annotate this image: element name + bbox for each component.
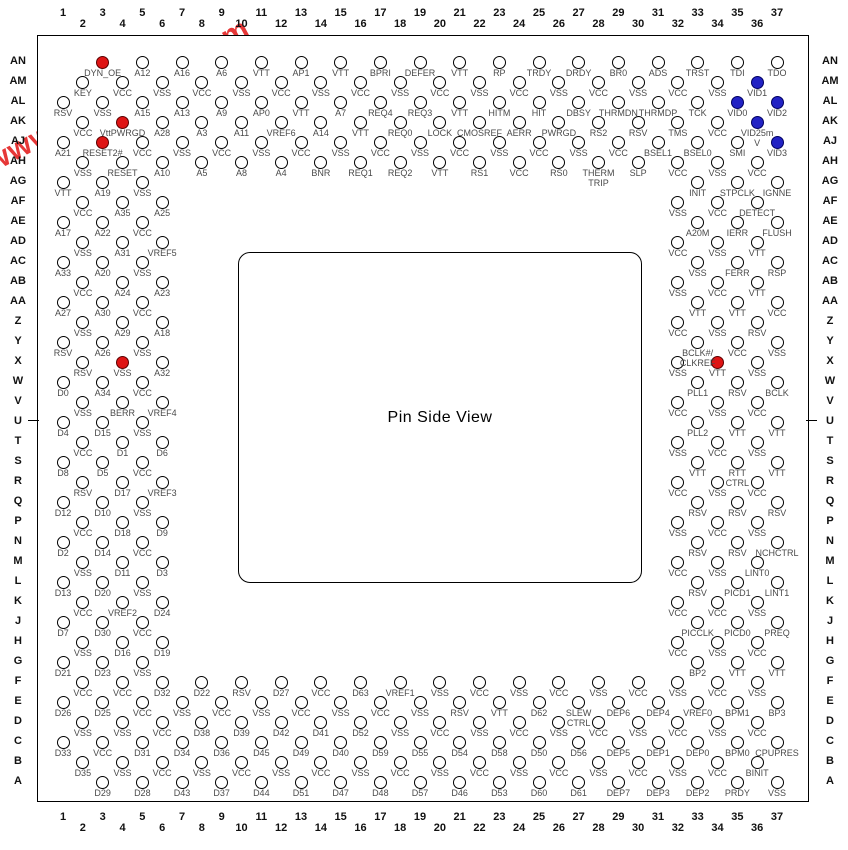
pin [96,496,109,509]
row-label-right: AG [816,175,844,187]
pin [652,56,665,69]
row-label-left: F [4,675,32,687]
row-label-left: T [4,435,32,447]
pin [156,396,169,409]
pin [156,196,169,209]
pin [76,516,89,529]
pin [671,716,684,729]
pin [771,616,784,629]
pin [57,616,70,629]
pin [116,676,129,689]
pin [493,776,506,789]
pin [751,636,764,649]
row-label-right: Q [816,495,844,507]
pin [354,756,367,769]
pin [572,736,585,749]
pin [394,76,407,89]
pin [76,436,89,449]
pin [751,356,764,369]
pin [96,536,109,549]
pin [473,676,486,689]
pin [711,196,724,209]
pin [612,696,625,709]
pin [671,516,684,529]
pin [632,756,645,769]
pin [493,696,506,709]
pin [156,476,169,489]
pin [453,136,466,149]
pin [136,456,149,469]
pin [533,96,546,109]
pin [711,436,724,449]
pin [691,96,704,109]
pin [632,116,645,129]
pin [513,756,526,769]
pin [691,296,704,309]
col-number-bottom: 27 [568,811,590,823]
pin [533,136,546,149]
pin [275,156,288,169]
row-label-left: P [4,515,32,527]
pin [612,736,625,749]
col-number-top: 4 [112,18,134,30]
pin [592,676,605,689]
pin [195,116,208,129]
pin [334,96,347,109]
pin [76,356,89,369]
col-number-bottom: 18 [389,822,411,834]
pin [156,236,169,249]
pin [96,136,109,149]
pin [433,716,446,729]
pin [552,156,565,169]
pin [195,756,208,769]
row-label-right: AB [816,275,844,287]
pin [394,156,407,169]
pin [176,776,189,789]
pin [76,76,89,89]
col-number-top: 2 [72,18,94,30]
row-label-right: Z [816,315,844,327]
pin [731,576,744,589]
center-box: Pin Side View [238,252,642,583]
pin [57,496,70,509]
pin [57,736,70,749]
row-label-right: AL [816,95,844,107]
pin [671,196,684,209]
row-label-left: AD [4,235,32,247]
pin [96,256,109,269]
pin [493,56,506,69]
pin [136,496,149,509]
row-label-right: N [816,535,844,547]
col-number-bottom: 11 [250,811,272,823]
pin [414,136,427,149]
col-number-top: 29 [607,7,629,19]
row-label-left: AA [4,295,32,307]
pin [473,756,486,769]
pin [771,656,784,669]
pin [275,716,288,729]
pin [671,596,684,609]
col-number-bottom: 31 [647,811,669,823]
pin [136,416,149,429]
pin [711,156,724,169]
col-number-bottom: 13 [290,811,312,823]
pin [731,136,744,149]
pin [156,676,169,689]
row-label-right: U [816,415,844,427]
col-number-top: 9 [211,7,233,19]
pin [751,476,764,489]
pin [76,716,89,729]
pin [195,676,208,689]
pin [771,96,784,109]
col-number-top: 30 [627,18,649,30]
pin [394,676,407,689]
pin [76,276,89,289]
col-number-bottom: 16 [350,822,372,834]
pin [96,176,109,189]
pin [711,316,724,329]
pin [731,696,744,709]
pin [691,656,704,669]
row-label-left: K [4,595,32,607]
col-number-top: 16 [350,18,372,30]
row-label-left: M [4,555,32,567]
col-number-bottom: 6 [151,822,173,834]
pin [414,56,427,69]
pin [533,736,546,749]
pin [691,536,704,549]
pin [572,136,585,149]
pin [295,56,308,69]
pin [691,616,704,629]
pin [255,776,268,789]
pin [295,696,308,709]
pin [374,736,387,749]
pin [295,776,308,789]
col-number-top: 32 [667,18,689,30]
col-number-top: 3 [92,7,114,19]
pin [314,756,327,769]
pin [116,636,129,649]
pin [711,236,724,249]
pin [57,376,70,389]
pin [354,76,367,89]
pin [592,756,605,769]
pin [96,776,109,789]
pin [433,76,446,89]
pin [76,636,89,649]
col-number-top: 21 [449,7,471,19]
row-label-right: AH [816,155,844,167]
pin [632,676,645,689]
col-number-top: 25 [528,7,550,19]
pin [116,516,129,529]
pin [156,316,169,329]
row-label-right: J [816,615,844,627]
col-number-bottom: 3 [92,811,114,823]
row-label-left: AC [4,255,32,267]
col-number-bottom: 36 [746,822,768,834]
pin [612,96,625,109]
row-label-left: AF [4,195,32,207]
col-number-bottom: 19 [409,811,431,823]
pin [632,76,645,89]
pin [453,736,466,749]
pin [731,496,744,509]
pin [671,356,684,369]
row-label-left: L [4,575,32,587]
pin [96,656,109,669]
pin [711,396,724,409]
row-label-right: L [816,575,844,587]
col-number-top: 24 [508,18,530,30]
pin [235,116,248,129]
pin [513,716,526,729]
row-label-right: AA [816,295,844,307]
pin [136,296,149,309]
pin [671,636,684,649]
pin [374,696,387,709]
pin [751,236,764,249]
pin [572,696,585,709]
pin [136,696,149,709]
row-label-right: F [816,675,844,687]
pin [533,696,546,709]
col-number-bottom: 4 [112,822,134,834]
col-number-top: 14 [310,18,332,30]
row-label-left: C [4,735,32,747]
pin [116,756,129,769]
pin [354,116,367,129]
pin [691,256,704,269]
pin [176,56,189,69]
pin [156,556,169,569]
pin [76,316,89,329]
pin [57,696,70,709]
col-number-bottom: 20 [429,822,451,834]
pin [632,716,645,729]
pin [295,136,308,149]
pin [414,696,427,709]
pin [235,716,248,729]
row-label-left: AJ [4,135,32,147]
pin [473,716,486,729]
pin [771,56,784,69]
pin [354,716,367,729]
pin [136,736,149,749]
pin [57,96,70,109]
pin [76,676,89,689]
pin [731,336,744,349]
col-number-bottom: 9 [211,811,233,823]
pin [473,76,486,89]
col-number-top: 13 [290,7,312,19]
row-label-right: H [816,635,844,647]
row-label-right: D [816,715,844,727]
pin [552,756,565,769]
pin [771,576,784,589]
pin [433,156,446,169]
pin [136,656,149,669]
row-label-right: Y [816,335,844,347]
pin [116,436,129,449]
row-label-right: A [816,775,844,787]
pin [731,176,744,189]
pin [711,596,724,609]
pin [76,396,89,409]
pin [394,116,407,129]
col-number-bottom: 15 [330,811,352,823]
pin [691,216,704,229]
pin [156,716,169,729]
pin [751,516,764,529]
pin [771,536,784,549]
pin [552,676,565,689]
pin [235,156,248,169]
pin [711,636,724,649]
pin [671,676,684,689]
pin [156,76,169,89]
pin [96,336,109,349]
pin [136,136,149,149]
pin [731,296,744,309]
pin [116,556,129,569]
pin [156,116,169,129]
col-number-bottom: 10 [231,822,253,834]
pin [731,736,744,749]
pin [711,356,724,369]
pin [136,576,149,589]
pin [275,756,288,769]
pin [334,736,347,749]
pin [453,696,466,709]
col-number-bottom: 17 [369,811,391,823]
pin [57,176,70,189]
pin [255,96,268,109]
pin [195,76,208,89]
pin [57,336,70,349]
pin [751,116,764,129]
row-label-left: V [4,395,32,407]
row-label-left: A [4,775,32,787]
pin [136,96,149,109]
pin [711,76,724,89]
row-label-left: AK [4,115,32,127]
pin [731,256,744,269]
pin [57,136,70,149]
pin [215,736,228,749]
pin [731,216,744,229]
row-label-right: AF [816,195,844,207]
pin [771,256,784,269]
pin [76,476,89,489]
pin [671,116,684,129]
pin [453,96,466,109]
pin [751,756,764,769]
col-number-bottom: 28 [588,822,610,834]
pin [314,76,327,89]
pin [652,736,665,749]
row-label-left: AE [4,215,32,227]
pin [731,656,744,669]
col-number-bottom: 25 [528,811,550,823]
pin [314,156,327,169]
col-number-top: 19 [409,7,431,19]
pin [612,136,625,149]
pin [374,776,387,789]
row-label-left: B [4,755,32,767]
pin [552,116,565,129]
pin [592,116,605,129]
col-number-top: 33 [687,7,709,19]
pin [751,676,764,689]
pin [235,676,248,689]
pin [751,396,764,409]
pin [771,696,784,709]
pin [136,776,149,789]
pin [334,696,347,709]
row-label-right: AN [816,55,844,67]
pin [96,216,109,229]
col-number-top: 8 [191,18,213,30]
pin [136,536,149,549]
col-number-top: 34 [707,18,729,30]
pin [96,576,109,589]
col-number-top: 22 [469,18,491,30]
row-label-right: AM [816,75,844,87]
pin [96,736,109,749]
pin [295,96,308,109]
pin [255,136,268,149]
pin [295,736,308,749]
diagram-title: Pin Side View [388,409,493,427]
row-label-left: N [4,535,32,547]
col-number-bottom: 24 [508,822,530,834]
pin [592,716,605,729]
pin [394,756,407,769]
pin [116,236,129,249]
pin [691,576,704,589]
pin [96,376,109,389]
pin [691,376,704,389]
pin [433,756,446,769]
pin [215,56,228,69]
col-number-top: 26 [548,18,570,30]
pin [671,476,684,489]
row-label-left: D [4,715,32,727]
col-number-top: 36 [746,18,768,30]
pin [136,616,149,629]
col-number-top: 27 [568,7,590,19]
row-label-right: AJ [816,135,844,147]
pin [176,736,189,749]
row-label-right: G [816,655,844,667]
row-label-left: E [4,695,32,707]
pin [215,136,228,149]
pin [76,556,89,569]
pin [691,496,704,509]
pin [731,376,744,389]
pin [57,296,70,309]
pin [771,736,784,749]
pin [751,76,764,89]
pin [771,496,784,509]
pin [771,296,784,309]
pin [652,136,665,149]
